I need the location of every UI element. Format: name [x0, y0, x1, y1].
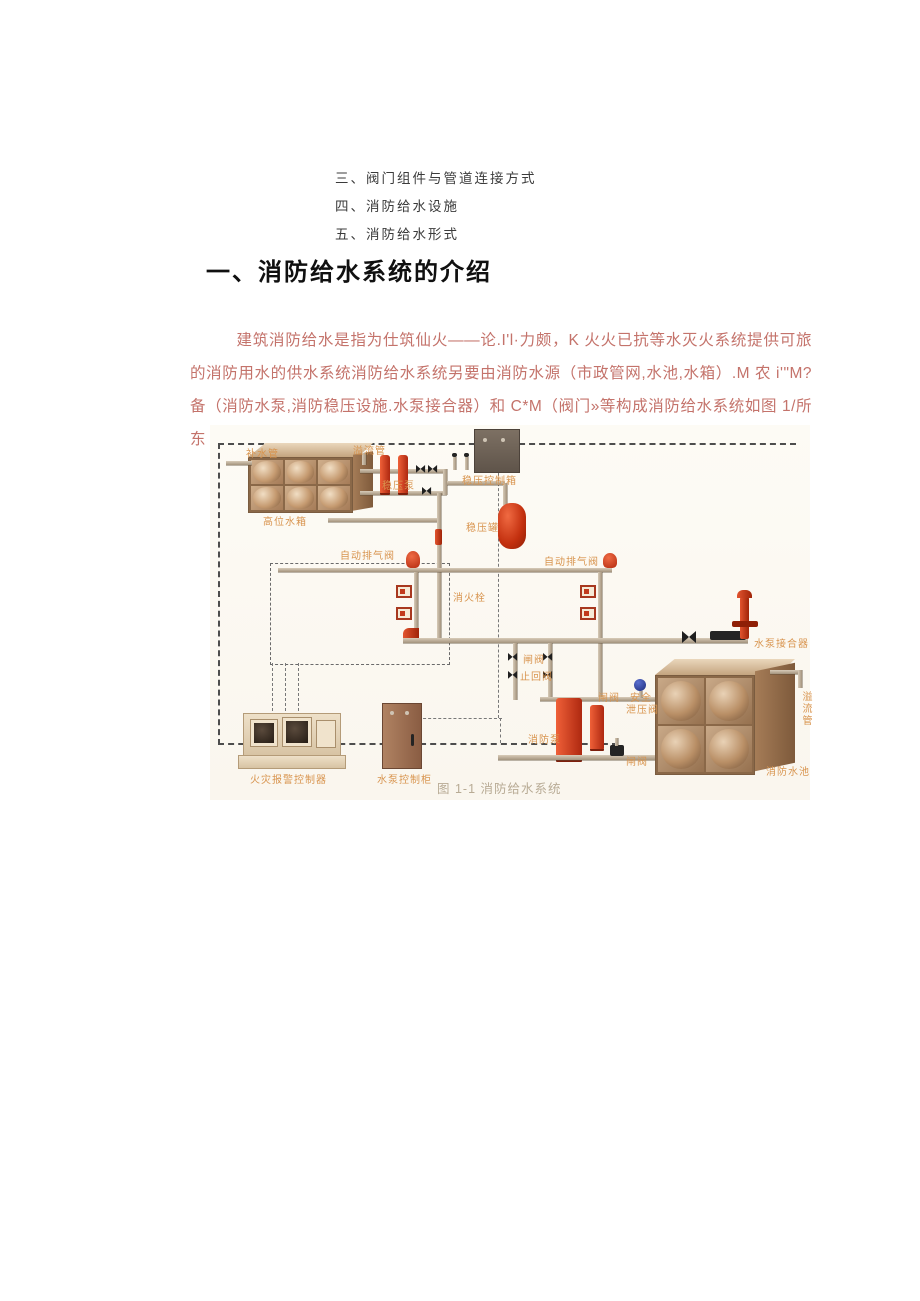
label-pump-connector: 水泵接合器: [754, 635, 809, 650]
tank-panel: [251, 486, 283, 510]
tank-panel: [706, 678, 752, 724]
valve-icon: [682, 631, 696, 643]
control-wire: [285, 663, 286, 711]
control-zone-outline: [270, 563, 450, 665]
pump-connector-arm: [732, 621, 758, 627]
makeup-pipe: [226, 461, 252, 465]
fire-hydrant-box: [396, 585, 412, 598]
monitor-screen: [254, 723, 274, 743]
label-check-valve: 止回阀: [520, 668, 553, 683]
label-fire-tank: 消防水池: [766, 763, 810, 778]
label-elevated-tank: 高位水箱: [263, 513, 307, 528]
valve-icon: [428, 465, 437, 473]
elevated-tank: [248, 457, 353, 513]
label-overflow-pipe-top: 溢流管: [353, 442, 386, 457]
pressure-tank: [498, 503, 526, 549]
label-pump-cabinet: 水泵控制柜: [377, 771, 432, 786]
document-page: 三、阀门组件与管道连接方式 四、消防给水设施 五、消防给水形式 一、消防给水系统…: [0, 0, 920, 1301]
check-valve-icon: [508, 671, 517, 679]
tank-panel: [285, 486, 317, 510]
tank-panel: [658, 726, 704, 772]
auto-air-valve: [406, 551, 420, 568]
monitor: [250, 719, 278, 747]
fire-pump: [590, 705, 604, 749]
control-wire: [272, 663, 273, 711]
gate-valve-icon: [508, 653, 517, 661]
toc-list: 三、阀门组件与管道连接方式 四、消防给水设施 五、消防给水形式: [335, 165, 537, 249]
gate-valve-icon: [610, 745, 624, 756]
pump-connector-cap: [737, 590, 752, 598]
monitor-screen: [286, 721, 308, 743]
control-wire: [298, 663, 299, 711]
hydrant-riser: [414, 572, 418, 632]
fire-hydrant-box: [396, 607, 412, 620]
red-pipe-elbow: [435, 529, 442, 545]
label-auto-air-valve-right: 自动排气阀: [544, 553, 599, 568]
tank-panel: [318, 460, 350, 484]
cabinet-handle: [411, 734, 414, 746]
stabilizer-control-box: [474, 429, 520, 473]
control-wire: [418, 718, 502, 719]
label-hydrant: 消火栓: [453, 589, 486, 604]
pump-control-cabinet: [382, 703, 422, 769]
valve-icon: [416, 465, 425, 473]
fire-pump: [556, 698, 582, 760]
pump-connector: [740, 597, 749, 639]
tank-panel: [318, 486, 350, 510]
pipe-stub: [453, 457, 456, 470]
auto-air-valve: [603, 553, 617, 568]
label-gate-valve-bottom: 闸阀: [626, 753, 648, 768]
figure-caption: 图 1-1 消防给水系统: [437, 778, 562, 797]
toc-item-forms: 五、消防给水形式: [335, 221, 537, 249]
main-riser-pipe: [437, 493, 441, 640]
fire-hydrant-box: [580, 585, 596, 598]
overflow-pipe: [798, 670, 802, 688]
toc-item-valves: 三、阀门组件与管道连接方式: [335, 165, 537, 193]
pipe-stub: [465, 457, 468, 470]
valve-stem: [615, 738, 618, 746]
tank-panel: [251, 460, 283, 484]
pipe: [328, 518, 438, 522]
alarm-controller-console: [243, 713, 341, 757]
label-stabilizer-control-box: 稳压控制箱: [462, 472, 517, 487]
control-wire: [218, 443, 220, 745]
console-base: [238, 755, 346, 769]
label-gate-valve-riser: 闸阀: [523, 651, 545, 666]
valve-icon: [422, 487, 431, 495]
label-alarm-controller: 火灾报警控制器: [250, 771, 327, 786]
indicator-dot: [405, 711, 409, 715]
label-stabilizer-pump: 稳压泵: [382, 477, 415, 492]
tank-panel: [658, 678, 704, 724]
fire-system-diagram: 补水管 溢流管 稳压泵 稳压控制箱 高位水箱 稳压罐 自动排气阀 自动排气阀 消…: [210, 425, 810, 800]
toc-item-facilities: 四、消防给水设施: [335, 193, 537, 221]
header-pipe: [403, 638, 748, 643]
fire-hydrant-box: [580, 607, 596, 620]
label-makeup-pipe: 补水管: [246, 445, 279, 460]
hydrant-riser: [598, 572, 602, 700]
tank-panel: [285, 460, 317, 484]
air-valve-pipe: [278, 568, 612, 572]
label-fire-pump: 消防泵: [528, 731, 561, 746]
indicator-dot: [390, 711, 394, 715]
control-panel: [316, 720, 336, 748]
section-heading: 一、消防给水系统的介绍: [206, 252, 492, 287]
indicator-dot: [483, 438, 487, 442]
label-pressure-tank: 稳压罐: [466, 519, 499, 534]
label-overflow-pipe-right: 溢流管: [798, 691, 813, 727]
label-safety-2: 泄压阀: [626, 701, 659, 716]
fire-tank: [655, 675, 755, 775]
control-wire: [500, 718, 501, 743]
indicator-dot: [501, 438, 505, 442]
fire-tank-side: [755, 663, 795, 772]
label-gate-valve-relief: 闸阀: [598, 689, 620, 704]
monitor: [282, 717, 312, 747]
label-auto-air-valve-left: 自动排气阀: [340, 547, 395, 562]
tank-panel: [706, 726, 752, 772]
